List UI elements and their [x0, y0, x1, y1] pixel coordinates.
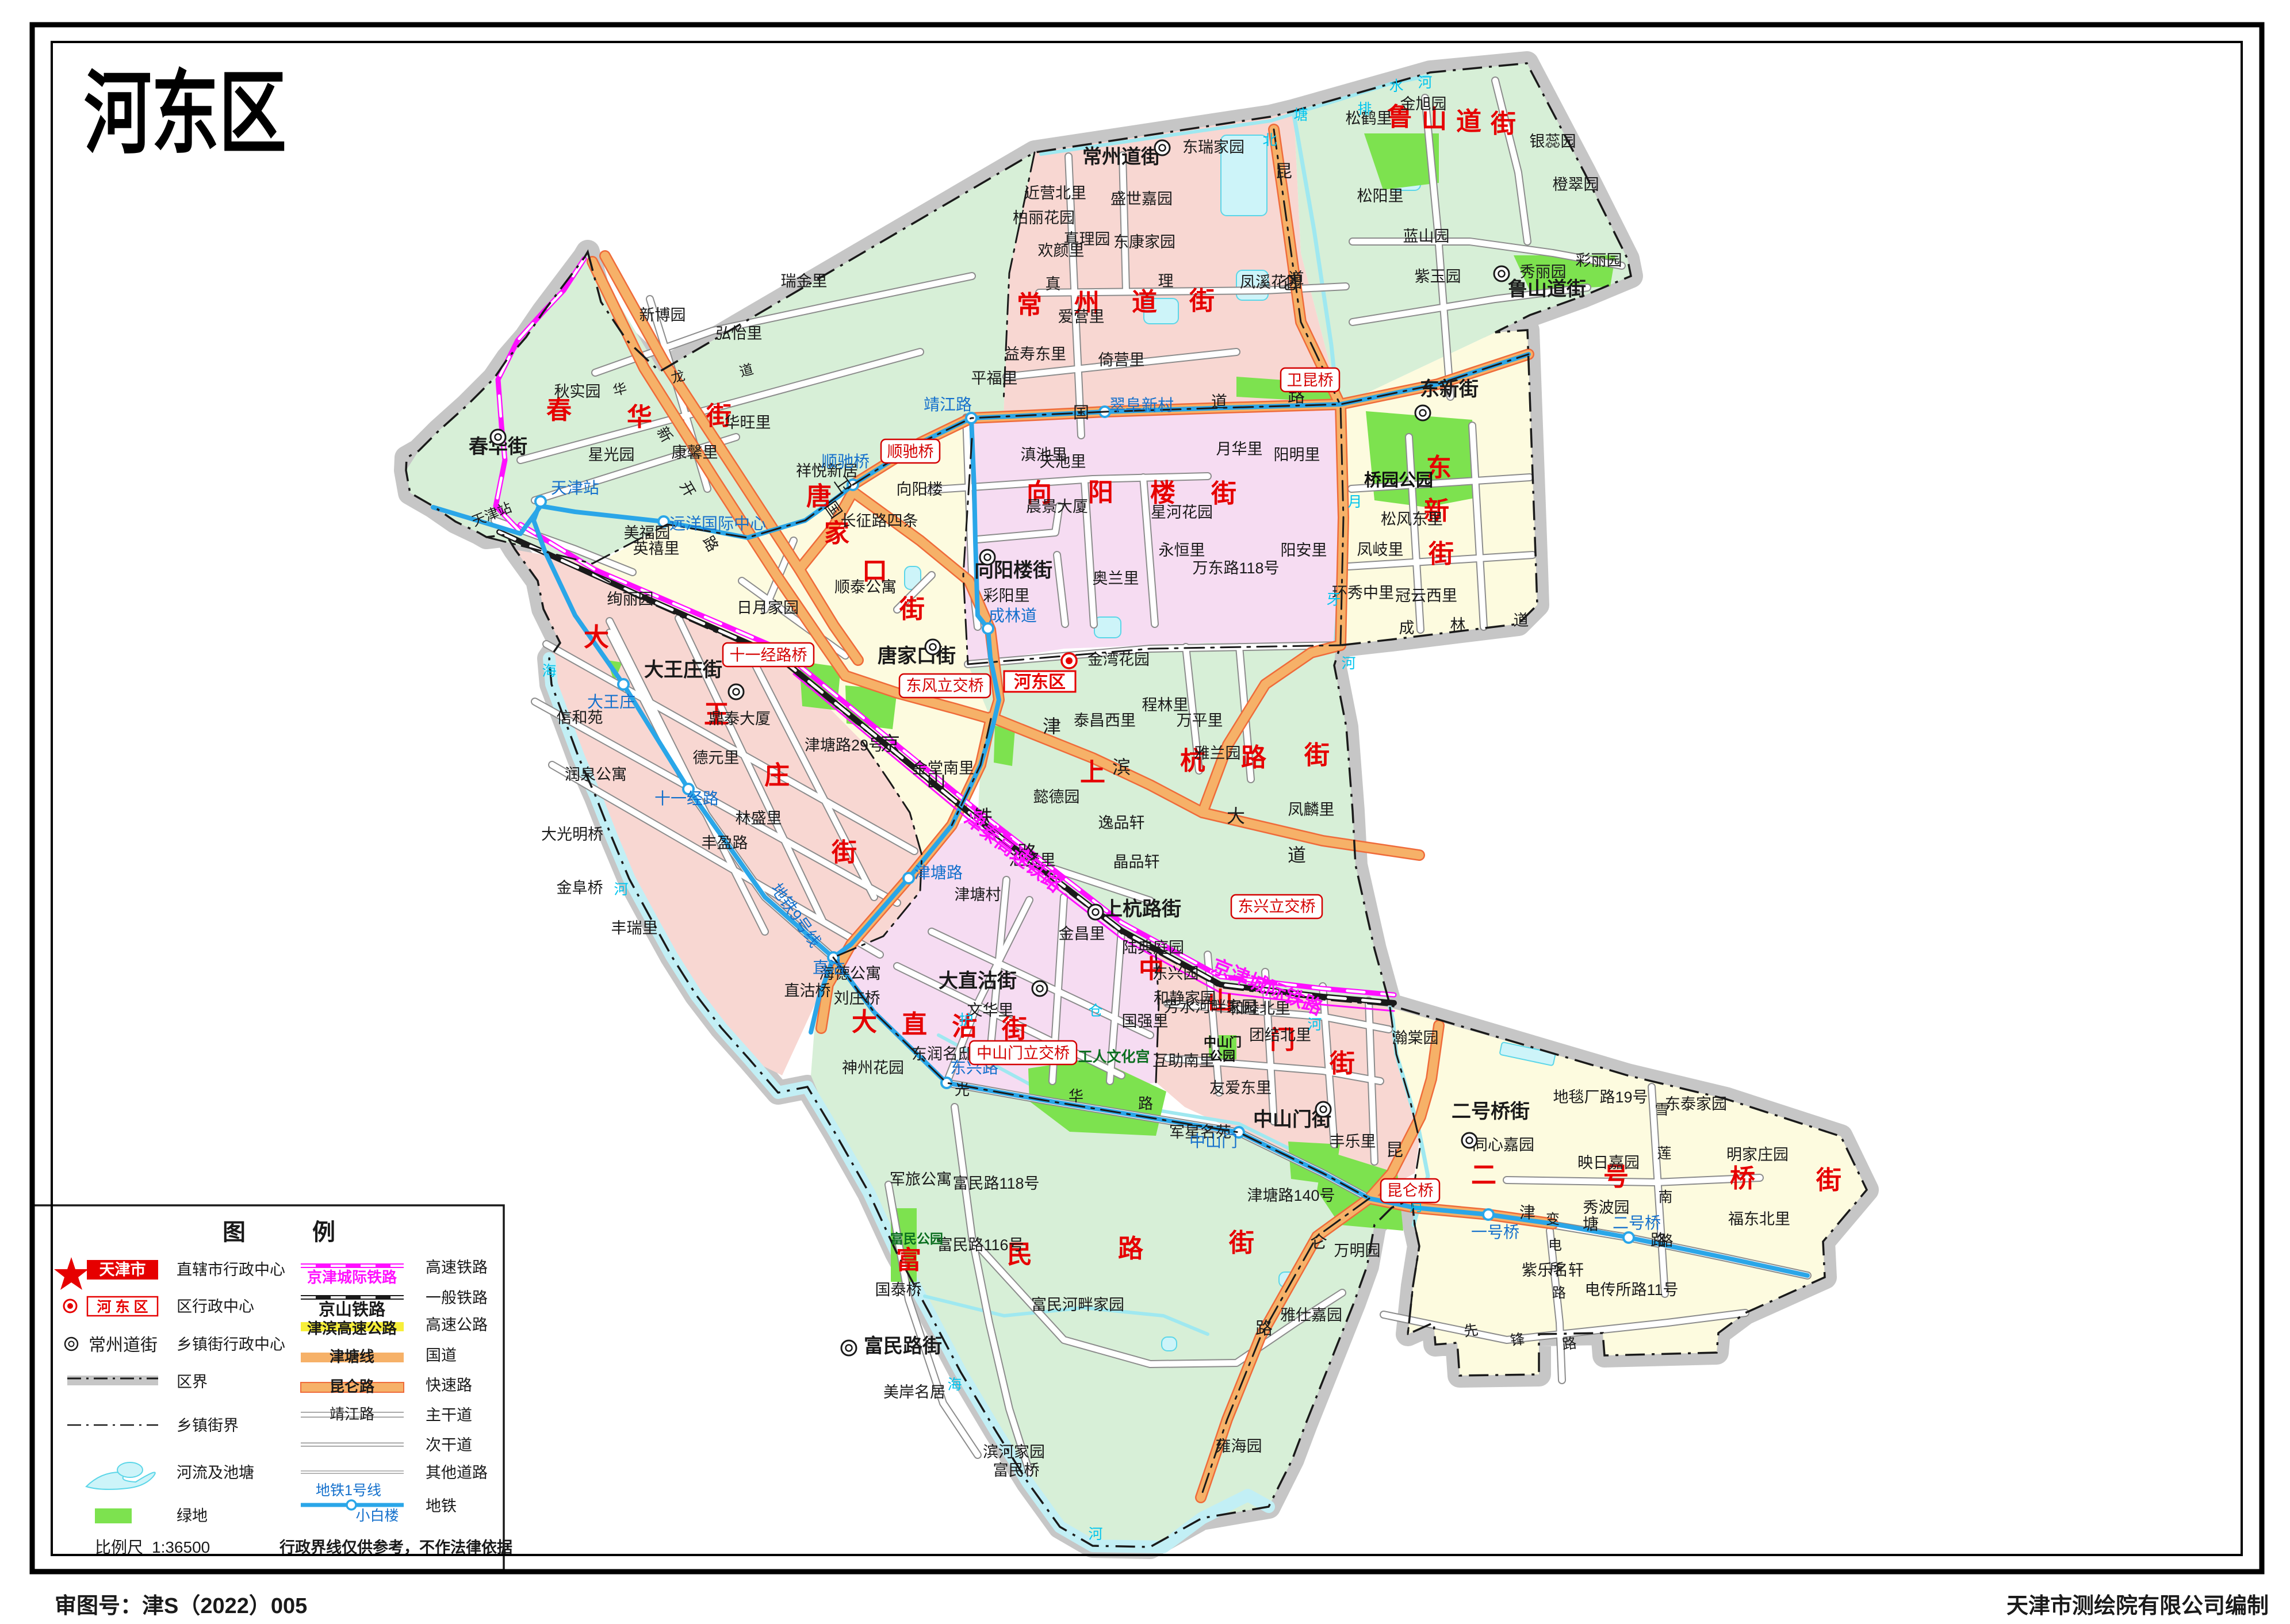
svg-text:路: 路	[1118, 1235, 1144, 1263]
svg-text:路: 路	[1561, 1335, 1578, 1353]
svg-text:地铁1号线: 地铁1号线	[316, 1483, 381, 1499]
svg-text:晨景大厦: 晨景大厦	[1026, 498, 1088, 515]
svg-text:大: 大	[852, 1008, 877, 1036]
svg-text:中山门: 中山门	[1204, 1035, 1242, 1050]
svg-text:林盛里: 林盛里	[736, 810, 782, 827]
svg-text:道: 道	[1514, 612, 1529, 629]
svg-text:津滨高速公路: 津滨高速公路	[307, 1320, 397, 1337]
svg-text:上杭路街: 上杭路街	[1103, 898, 1181, 920]
svg-text:康馨里: 康馨里	[672, 444, 718, 461]
svg-text:常州道街: 常州道街	[1082, 146, 1161, 168]
svg-text:紫玉园: 紫玉园	[1415, 268, 1461, 285]
svg-text:路: 路	[1138, 1095, 1153, 1112]
svg-text:鼎泰大厦: 鼎泰大厦	[709, 710, 771, 727]
svg-text:华: 华	[627, 403, 652, 431]
svg-text:河: 河	[1341, 656, 1355, 672]
svg-text:雍海园: 雍海园	[1216, 1438, 1262, 1455]
svg-text:绿地: 绿地	[177, 1507, 208, 1525]
svg-text:二号桥: 二号桥	[1613, 1214, 1661, 1232]
svg-text:京: 京	[880, 733, 900, 755]
svg-text:晶品轩: 晶品轩	[1113, 853, 1160, 871]
svg-text:彩阳里: 彩阳里	[983, 587, 1030, 604]
svg-text:街: 街	[899, 595, 925, 623]
svg-text:阳: 阳	[1088, 478, 1113, 507]
svg-text:同心嘉园: 同心嘉园	[1472, 1136, 1534, 1154]
svg-text:富: 富	[896, 1246, 921, 1274]
svg-text:河: 河	[1418, 75, 1432, 91]
svg-text:地毯厂路19号: 地毯厂路19号	[1553, 1089, 1648, 1106]
svg-text:滨: 滨	[1112, 757, 1131, 777]
svg-text:国: 国	[1073, 404, 1089, 422]
svg-text:津塘路29号: 津塘路29号	[805, 737, 884, 754]
svg-text:海: 海	[542, 663, 556, 679]
svg-text:军旅公寓: 军旅公寓	[890, 1171, 952, 1188]
svg-text:电: 电	[1548, 1238, 1562, 1253]
svg-text:友爱东里: 友爱东里	[1209, 1079, 1272, 1097]
svg-text:十一经路: 十一经路	[654, 790, 719, 807]
svg-text:金昌里: 金昌里	[1059, 925, 1105, 943]
svg-text:图: 图	[223, 1220, 246, 1245]
svg-text:天津市测绘院有限公司编制: 天津市测绘院有限公司编制	[2006, 1594, 2269, 1618]
svg-text:高速公路: 高速公路	[426, 1316, 488, 1334]
svg-text:凤麟里: 凤麟里	[1288, 801, 1335, 818]
svg-text:北: 北	[1262, 132, 1277, 148]
svg-text:常: 常	[1017, 291, 1042, 319]
svg-text:秋实园: 秋实园	[554, 383, 601, 400]
svg-text:护: 护	[959, 1012, 973, 1028]
svg-text:中山门: 中山门	[1189, 1132, 1238, 1150]
svg-text:快速路: 快速路	[426, 1377, 472, 1394]
svg-text:光: 光	[955, 1081, 970, 1098]
svg-text:顺驰桥: 顺驰桥	[887, 443, 934, 460]
svg-text:大: 大	[584, 623, 609, 652]
svg-text:直沽: 直沽	[813, 959, 845, 976]
svg-text:真: 真	[1046, 275, 1061, 293]
svg-text:林: 林	[1450, 616, 1466, 634]
svg-text:橙翠园: 橙翠园	[1553, 176, 1599, 193]
svg-text:津塘路140号: 津塘路140号	[1247, 1187, 1335, 1204]
svg-text:互助南里: 互助南里	[1152, 1052, 1215, 1070]
svg-text:盛世嘉园: 盛世嘉园	[1110, 190, 1173, 208]
svg-text:程林里: 程林里	[1142, 696, 1189, 714]
svg-text:路: 路	[1552, 1285, 1566, 1301]
svg-text:华旺里: 华旺里	[725, 414, 771, 431]
svg-text:陆典庭园: 陆典庭园	[1122, 939, 1184, 956]
svg-text:东康家园: 东康家园	[1113, 233, 1175, 251]
svg-text:南: 南	[1658, 1189, 1672, 1205]
svg-text:大直沽街: 大直沽街	[939, 970, 1017, 992]
svg-text:东泰家园: 东泰家园	[1665, 1096, 1727, 1113]
svg-text:乡镇街行政中心: 乡镇街行政中心	[177, 1336, 285, 1353]
svg-text:泰昌西里: 泰昌西里	[1074, 712, 1136, 729]
svg-text:翠阜新村: 翠阜新村	[1109, 396, 1174, 414]
svg-text:润泉公寓: 润泉公寓	[565, 766, 627, 783]
svg-text:春: 春	[546, 396, 572, 424]
svg-text:京津城际铁路: 京津城际铁路	[307, 1269, 397, 1286]
svg-text:平福里: 平福里	[971, 370, 1018, 387]
svg-text:街: 街	[1428, 540, 1454, 568]
svg-text:靖江路: 靖江路	[924, 396, 972, 413]
svg-text:逸品轩: 逸品轩	[1098, 814, 1145, 832]
svg-text:一般铁路: 一般铁路	[426, 1289, 488, 1307]
svg-text:街: 街	[1189, 287, 1215, 315]
svg-text:英禧里: 英禧里	[633, 540, 680, 557]
svg-text:锋: 锋	[1510, 1331, 1526, 1349]
svg-text:河流及池塘: 河流及池塘	[177, 1464, 254, 1481]
svg-text:街: 街	[1816, 1166, 1841, 1194]
svg-text:区界: 区界	[177, 1373, 208, 1391]
svg-text:神州花园: 神州花园	[842, 1059, 904, 1077]
svg-text:街: 街	[1001, 1015, 1027, 1043]
svg-text:东兴园: 东兴园	[1152, 965, 1199, 982]
svg-text:津塘路: 津塘路	[914, 864, 963, 882]
svg-text:莲: 莲	[1657, 1146, 1671, 1162]
svg-text:水: 水	[1389, 78, 1403, 94]
svg-text:雅兰园: 雅兰园	[1194, 745, 1241, 762]
svg-text:路: 路	[1255, 1319, 1273, 1338]
svg-text:津塘村: 津塘村	[955, 886, 1001, 903]
svg-text:主干道: 主干道	[426, 1407, 472, 1424]
svg-text:滨河家园: 滨河家园	[983, 1443, 1045, 1461]
svg-text:丰瑞里: 丰瑞里	[611, 920, 658, 937]
svg-text:常州道街: 常州道街	[89, 1336, 158, 1355]
svg-text:区行政中心: 区行政中心	[177, 1298, 254, 1315]
svg-text:顺泰公寓: 顺泰公寓	[834, 579, 897, 596]
svg-text:其他道路: 其他道路	[426, 1464, 488, 1481]
svg-text:仓: 仓	[1088, 1003, 1102, 1019]
svg-text:直: 直	[902, 1010, 927, 1039]
svg-text:一号桥: 一号桥	[1471, 1223, 1519, 1241]
svg-text:津: 津	[1519, 1204, 1535, 1221]
svg-text:成林道: 成林道	[989, 607, 1037, 625]
svg-text:东新街: 东新街	[1420, 378, 1479, 400]
svg-text:上: 上	[1080, 759, 1105, 787]
svg-text:电传所路11号: 电传所路11号	[1584, 1281, 1678, 1299]
svg-text:月华里: 月华里	[1216, 441, 1263, 458]
svg-text:蓝山园: 蓝山园	[1403, 228, 1450, 245]
svg-text:天津站: 天津站	[551, 479, 599, 497]
svg-text:雅仕嘉园: 雅仕嘉园	[1280, 1307, 1342, 1324]
svg-text:排: 排	[1357, 101, 1372, 117]
svg-text:鲁山道街: 鲁山道街	[1508, 278, 1586, 300]
svg-text:倚营里: 倚营里	[1098, 351, 1145, 369]
svg-text:日月家园: 日月家园	[737, 599, 799, 616]
svg-text:雪: 雪	[1655, 1102, 1669, 1118]
svg-text:1:36500: 1:36500	[152, 1538, 210, 1556]
svg-text:懿德园: 懿德园	[1033, 788, 1080, 806]
svg-text:东瑞家园: 东瑞家园	[1182, 139, 1244, 156]
svg-text:天津市: 天津市	[99, 1261, 146, 1278]
svg-text:福东北里: 福东北里	[1728, 1211, 1790, 1228]
svg-text:道: 道	[1288, 845, 1306, 865]
svg-text:河东区: 河东区	[84, 63, 286, 164]
svg-text:万明园: 万明园	[1334, 1242, 1381, 1259]
svg-text:比例尺: 比例尺	[95, 1538, 143, 1556]
svg-text:松风东里: 松风东里	[1381, 511, 1443, 528]
svg-text:金湾花园: 金湾花园	[1087, 651, 1150, 668]
svg-text:街: 街	[831, 838, 857, 867]
svg-text:奥兰里: 奥兰里	[1093, 570, 1139, 587]
svg-text:文华里: 文华里	[967, 1002, 1014, 1019]
svg-text:先: 先	[1463, 1322, 1480, 1339]
svg-text:顺驰桥: 顺驰桥	[821, 453, 870, 470]
svg-text:富民路116号: 富民路116号	[937, 1236, 1024, 1254]
svg-text:二: 二	[1471, 1161, 1496, 1189]
svg-text:街: 街	[1490, 110, 1516, 138]
svg-text:万东路118号: 万东路118号	[1192, 560, 1279, 577]
svg-text:凤岐里: 凤岐里	[1357, 541, 1404, 558]
svg-text:信和苑: 信和苑	[557, 709, 603, 726]
svg-text:欢颜里: 欢颜里	[1038, 242, 1085, 259]
svg-text:中山门立交桥: 中山门立交桥	[976, 1044, 1070, 1062]
svg-text:松阳里: 松阳里	[1357, 187, 1404, 205]
svg-text:昆: 昆	[1275, 162, 1292, 181]
svg-text:道: 道	[1456, 108, 1481, 136]
svg-text:环秀中里: 环秀中里	[1332, 584, 1394, 602]
svg-text:公园: 公园	[1210, 1049, 1235, 1063]
svg-text:仑: 仑	[1310, 1233, 1327, 1252]
svg-text:桥园公园: 桥园公园	[1364, 471, 1433, 490]
svg-text:阳安里: 阳安里	[1281, 542, 1327, 559]
svg-text:大: 大	[1227, 806, 1245, 826]
svg-text:山: 山	[926, 770, 946, 792]
svg-text:塘: 塘	[1583, 1215, 1599, 1233]
svg-text:街: 街	[1211, 480, 1236, 508]
svg-text:牙: 牙	[1326, 592, 1341, 608]
svg-text:楼: 楼	[1150, 479, 1175, 507]
svg-text:长征路四条: 长征路四条	[841, 512, 918, 530]
svg-text:河: 河	[1088, 1526, 1102, 1542]
svg-text:大王庄: 大王庄	[587, 693, 635, 711]
svg-text:富民公园: 富民公园	[890, 1231, 943, 1246]
svg-text:瀚棠园: 瀚棠园	[1392, 1029, 1439, 1047]
svg-text:滇池里: 滇池里	[1021, 446, 1067, 464]
svg-text:瑞金里: 瑞金里	[781, 273, 828, 290]
svg-text:理: 理	[1158, 273, 1174, 290]
svg-text:远洋国际中心: 远洋国际中心	[669, 515, 766, 533]
svg-text:卫昆桥: 卫昆桥	[1287, 371, 1334, 389]
svg-text:庄: 庄	[764, 761, 790, 790]
svg-text:道: 道	[1132, 288, 1157, 316]
svg-text:星光园: 星光园	[588, 446, 635, 464]
svg-text:河: 河	[614, 882, 628, 898]
svg-text:津塘线: 津塘线	[330, 1348, 374, 1365]
svg-text:富民路街: 富民路街	[864, 1335, 942, 1357]
svg-text:美福园: 美福园	[624, 524, 671, 542]
svg-text:审图号：津S（2022）005: 审图号：津S（2022）005	[55, 1594, 307, 1618]
svg-text:富民河畔家园: 富民河畔家园	[1031, 1296, 1124, 1313]
svg-text:昆仑路: 昆仑路	[330, 1378, 375, 1395]
svg-text:明家庄园: 明家庄园	[1726, 1146, 1789, 1163]
svg-text:丰乐里: 丰乐里	[1330, 1133, 1376, 1150]
svg-text:团结北里: 团结北里	[1249, 1027, 1311, 1044]
svg-text:直沽桥: 直沽桥	[784, 982, 831, 999]
svg-text:和静家园: 和静家园	[1154, 990, 1216, 1007]
svg-text:冠云西里: 冠云西里	[1395, 587, 1457, 604]
svg-text:绚丽园: 绚丽园	[607, 591, 654, 608]
svg-text:万平里: 万平里	[1177, 712, 1223, 729]
svg-text:弘怡里: 弘怡里	[716, 325, 763, 342]
svg-text:变: 变	[1546, 1212, 1560, 1227]
svg-text:乡镇街界: 乡镇街界	[177, 1417, 239, 1434]
svg-text:新博园: 新博园	[639, 307, 686, 324]
svg-text:二号桥街: 二号桥街	[1452, 1101, 1530, 1123]
svg-text:近营北里: 近营北里	[1024, 185, 1086, 202]
svg-text:东风立交桥: 东风立交桥	[906, 677, 984, 694]
svg-text:美岸名居: 美岸名居	[883, 1384, 945, 1401]
svg-text:河东区: 河东区	[1014, 672, 1066, 692]
svg-text:高速铁路: 高速铁路	[426, 1259, 488, 1276]
svg-text:街: 街	[1304, 741, 1330, 769]
svg-text:国强里: 国强里	[1122, 1013, 1169, 1030]
svg-text:例: 例	[312, 1220, 335, 1245]
svg-text:桥: 桥	[1730, 1165, 1755, 1193]
svg-text:地铁: 地铁	[426, 1497, 457, 1515]
svg-text:柏丽花园: 柏丽花园	[1013, 209, 1075, 227]
svg-text:海: 海	[947, 1377, 962, 1393]
svg-text:金旭园: 金旭园	[1400, 95, 1447, 113]
svg-text:行政界线仅供参考，不作法律依据: 行政界线仅供参考，不作法律依据	[279, 1538, 512, 1556]
svg-text:国道: 国道	[426, 1347, 457, 1364]
svg-text:大光明桥: 大光明桥	[541, 826, 603, 843]
svg-text:唐家口街: 唐家口街	[878, 645, 956, 667]
svg-text:道: 道	[1289, 270, 1304, 287]
svg-text:所: 所	[1550, 1261, 1564, 1277]
svg-text:东兴立交桥: 东兴立交桥	[1238, 898, 1316, 915]
svg-text:塘: 塘	[1293, 107, 1308, 123]
svg-text:星河花园: 星河花园	[1151, 504, 1213, 521]
svg-text:永恒里: 永恒里	[1159, 542, 1205, 559]
svg-text:彩丽园: 彩丽园	[1576, 252, 1622, 269]
svg-text:富民桥: 富民桥	[993, 1462, 1040, 1479]
svg-text:月: 月	[1347, 494, 1362, 510]
svg-text:银蕊园: 银蕊园	[1530, 133, 1576, 150]
svg-text:华: 华	[1069, 1087, 1083, 1105]
svg-text:映日嘉园: 映日嘉园	[1577, 1154, 1640, 1171]
svg-text:小白楼: 小白楼	[355, 1508, 399, 1524]
svg-text:德元里: 德元里	[693, 749, 740, 767]
svg-text:富民路118号: 富民路118号	[952, 1175, 1039, 1192]
svg-text:直辖市行政中心: 直辖市行政中心	[177, 1261, 285, 1278]
svg-text:街: 街	[1329, 1050, 1355, 1078]
svg-text:爱营里: 爱营里	[1058, 308, 1105, 325]
svg-text:成: 成	[1399, 619, 1415, 637]
svg-text:津: 津	[1043, 716, 1061, 737]
svg-text:次干道: 次干道	[426, 1437, 472, 1454]
svg-text:金阜桥: 金阜桥	[557, 879, 603, 897]
svg-text:昆仑桥: 昆仑桥	[1387, 1182, 1434, 1199]
svg-text:路: 路	[1241, 744, 1267, 772]
svg-text:向阳楼: 向阳楼	[897, 481, 943, 498]
svg-text:大王庄街: 大王庄街	[644, 659, 722, 681]
svg-text:国泰桥: 国泰桥	[875, 1281, 922, 1299]
svg-text:益寿东里: 益寿东里	[1004, 346, 1066, 363]
svg-text:河: 河	[1307, 1017, 1322, 1033]
svg-text:道: 道	[1211, 393, 1227, 411]
svg-text:路: 路	[1659, 1233, 1673, 1249]
svg-text:丰盈路: 丰盈路	[702, 834, 748, 852]
svg-text:街: 街	[1228, 1229, 1254, 1257]
svg-text:十一经路桥: 十一经路桥	[730, 646, 807, 664]
svg-text:靖江路: 靖江路	[330, 1405, 374, 1423]
svg-text:阳明里: 阳明里	[1274, 446, 1320, 464]
svg-text:昆: 昆	[1386, 1141, 1403, 1160]
svg-text:刘庄桥: 刘庄桥	[834, 990, 880, 1007]
svg-text:京山铁路: 京山铁路	[319, 1300, 386, 1319]
svg-text:河 东 区: 河 东 区	[97, 1299, 148, 1315]
